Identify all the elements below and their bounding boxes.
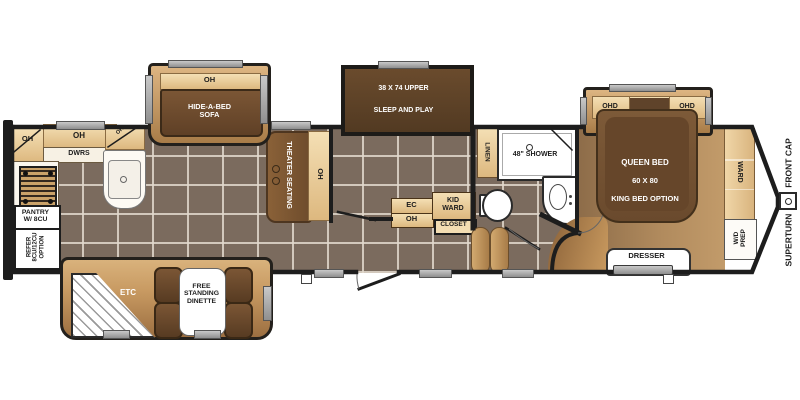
superturn-label: SUPERTURN (784, 214, 793, 267)
pantry-label: PANTRY W/ 8CU (14, 205, 57, 227)
angled-wall (542, 215, 579, 233)
dresser-label: DRESSER (606, 249, 687, 263)
entry-door (359, 274, 399, 289)
ec-label: EC (391, 198, 432, 212)
linen-label: LINEN (483, 142, 490, 162)
slide-rail (705, 97, 712, 125)
sleep-and-play-slideout: 38 X 74 UPPER SLEEP AND PLAY (341, 65, 474, 136)
closet-label: CLOSET (434, 219, 473, 231)
dinette-chair (224, 302, 253, 339)
dinette-label: FREE STANDING DINETTE (179, 274, 224, 314)
slide-rail (263, 286, 272, 321)
pocket-door (338, 212, 375, 220)
dinette-slideout: ETC FREE STANDING DINETTE (60, 257, 273, 340)
dinette-chair (224, 267, 253, 304)
window (419, 269, 452, 278)
theater-seating-label: THEATER SEATING (285, 141, 293, 209)
city-water-inlet (301, 274, 312, 284)
bed-label-1: QUEEN BED (598, 157, 692, 169)
queen-bed: QUEEN BED 60 X 80 KING BED OPTION (596, 109, 698, 223)
slide-rail (145, 75, 153, 124)
sofa-oh-label: OH (160, 73, 259, 88)
utility-box (663, 274, 674, 284)
slide-rail (580, 97, 587, 125)
theater-oh-label: OH (316, 168, 324, 179)
shower-label: 48" SHOWER (497, 148, 573, 162)
kid-ward-label: KID WARD (432, 192, 474, 218)
kitchen-drawers-label: DWRS (43, 147, 115, 161)
staircase-edge (552, 233, 578, 271)
bed-label-2: 60 X 80 (598, 175, 692, 187)
kitchen-corner-oh-label: OH (12, 133, 43, 145)
sofa-label: HIDE-A-BED SOFA (160, 89, 259, 133)
slide-rail (103, 330, 130, 339)
bed-label-3: KING BED OPTION (598, 193, 692, 205)
slide-rail (271, 121, 311, 130)
ec-oh-label: OH (391, 213, 432, 226)
sofa-slideout: OH HIDE-A-BED SOFA (148, 63, 271, 146)
slide-rail (194, 330, 221, 339)
rv-floor-plan: OH OH DWRS OH PANTRY W/ 8CU REFER 8CU/12… (0, 0, 800, 400)
refrigerator-label: REFER 8CU/12CU OPTION (26, 232, 45, 261)
front-cap-icon (779, 192, 797, 210)
window (502, 269, 534, 278)
slide-rail (378, 61, 429, 69)
shower-door-line (551, 129, 572, 150)
entertainment-cabinet (71, 273, 155, 338)
etc-label: ETC (110, 288, 146, 298)
front-cap-label: FRONT CAP (784, 138, 793, 188)
slide-rail (260, 75, 268, 124)
entry-door-arc (357, 274, 359, 289)
wd-prep-label: W/D PREP (733, 229, 747, 247)
kitchen-oh-label: OH (43, 127, 115, 145)
front-cap-icon-circle (785, 198, 792, 205)
ward-label: WARD (735, 161, 743, 182)
slide-rail (168, 60, 243, 68)
window (314, 269, 344, 278)
bunk-lower-label: SLEEP AND PLAY (345, 105, 462, 117)
slide-rail (609, 84, 676, 92)
bunk-upper-label: 38 X 74 UPPER (345, 83, 462, 95)
